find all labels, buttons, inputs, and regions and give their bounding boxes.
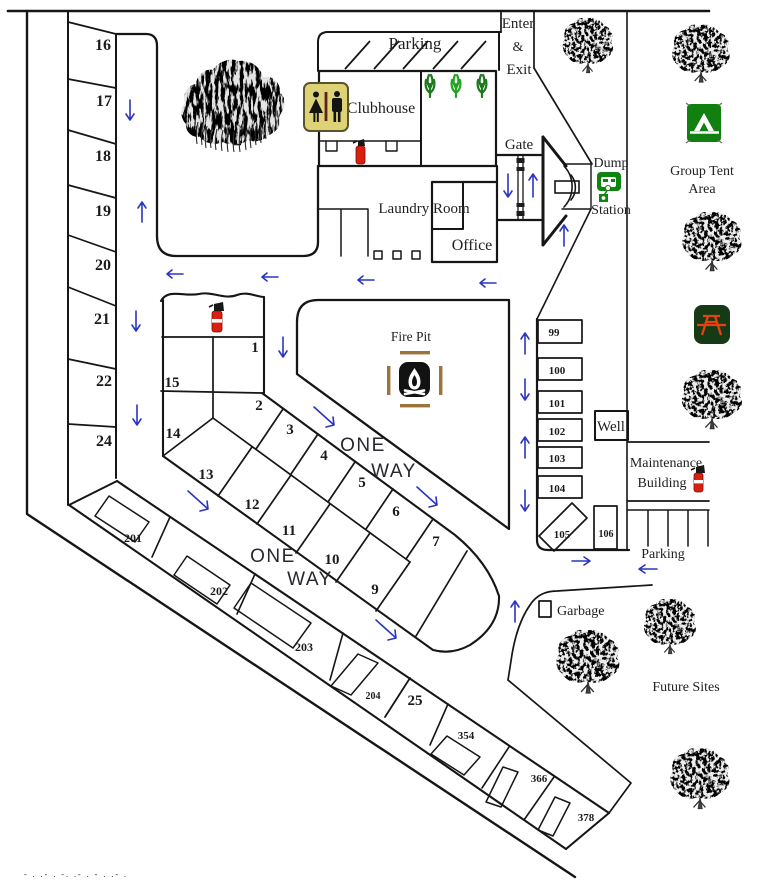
svg-text:Enter: Enter bbox=[502, 16, 534, 32]
svg-text:378: 378 bbox=[578, 812, 595, 824]
svg-text:Well: Well bbox=[597, 419, 625, 435]
svg-text:&: & bbox=[513, 40, 524, 55]
svg-text:Clubhouse: Clubhouse bbox=[347, 100, 415, 117]
svg-text:104: 104 bbox=[549, 483, 566, 495]
svg-text:Fire Pit: Fire Pit bbox=[391, 329, 431, 344]
svg-text:100: 100 bbox=[549, 365, 566, 377]
svg-text:Garbage: Garbage bbox=[557, 604, 604, 619]
svg-text:103: 103 bbox=[549, 453, 566, 465]
svg-text:Office: Office bbox=[452, 237, 493, 254]
svg-text:Parking: Parking bbox=[389, 34, 442, 53]
svg-text:15: 15 bbox=[165, 375, 180, 391]
svg-text:ONE: ONE bbox=[250, 546, 296, 567]
svg-text:3: 3 bbox=[286, 422, 294, 438]
svg-text:21: 21 bbox=[94, 311, 110, 328]
svg-text:13: 13 bbox=[199, 467, 214, 483]
svg-text:Laundry Room: Laundry Room bbox=[378, 201, 470, 217]
svg-text:7: 7 bbox=[432, 534, 440, 550]
svg-text:Group Tent: Group Tent bbox=[670, 164, 734, 179]
svg-text:6: 6 bbox=[392, 504, 400, 520]
svg-text:101: 101 bbox=[549, 398, 566, 410]
svg-text:WAY: WAY bbox=[287, 569, 333, 590]
svg-text:Exit: Exit bbox=[507, 62, 533, 78]
svg-text:- . .- . -. .- . - .: - . .- . -. .- . - . .- . bbox=[24, 870, 128, 879]
svg-text:Gate: Gate bbox=[505, 137, 534, 153]
svg-text:5: 5 bbox=[358, 475, 366, 491]
svg-text:24: 24 bbox=[96, 433, 112, 450]
svg-text:106: 106 bbox=[599, 529, 614, 540]
svg-text:2: 2 bbox=[255, 398, 263, 414]
svg-text:14: 14 bbox=[166, 426, 182, 442]
svg-text:ONE: ONE bbox=[340, 435, 386, 456]
svg-text:9: 9 bbox=[371, 582, 379, 598]
svg-text:Future Sites: Future Sites bbox=[652, 680, 719, 695]
svg-text:12: 12 bbox=[245, 497, 260, 513]
svg-text:4: 4 bbox=[320, 448, 328, 464]
svg-text:17: 17 bbox=[96, 93, 112, 110]
svg-text:203: 203 bbox=[295, 640, 313, 654]
svg-text:202: 202 bbox=[210, 584, 228, 598]
svg-text:354: 354 bbox=[458, 730, 475, 742]
svg-text:19: 19 bbox=[95, 203, 111, 220]
svg-text:16: 16 bbox=[95, 37, 111, 54]
svg-text:Parking: Parking bbox=[641, 547, 685, 562]
svg-text:201: 201 bbox=[124, 531, 142, 545]
svg-text:Building: Building bbox=[637, 476, 686, 491]
svg-text:Maintenance: Maintenance bbox=[630, 456, 702, 471]
svg-text:366: 366 bbox=[531, 773, 548, 785]
svg-text:Station: Station bbox=[591, 203, 631, 218]
svg-text:105: 105 bbox=[554, 529, 571, 541]
svg-text:1: 1 bbox=[251, 340, 259, 356]
svg-text:204: 204 bbox=[366, 691, 381, 702]
svg-text:Dump: Dump bbox=[594, 156, 629, 171]
svg-text:102: 102 bbox=[549, 426, 566, 438]
svg-text:10: 10 bbox=[325, 552, 340, 568]
svg-text:25: 25 bbox=[408, 693, 423, 709]
svg-text:18: 18 bbox=[95, 148, 111, 165]
svg-text:22: 22 bbox=[96, 373, 112, 390]
svg-text:11: 11 bbox=[282, 523, 296, 539]
svg-text:WAY: WAY bbox=[371, 461, 417, 482]
svg-text:20: 20 bbox=[95, 257, 111, 274]
svg-text:99: 99 bbox=[549, 327, 561, 339]
svg-text:Area: Area bbox=[688, 182, 716, 197]
